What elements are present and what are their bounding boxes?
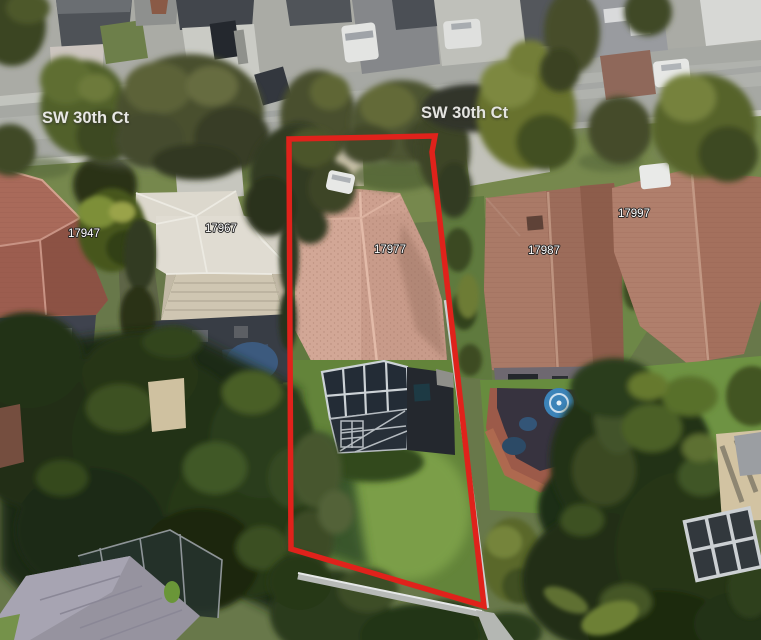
svg-text:SW 30th Ct: SW 30th Ct	[421, 104, 509, 122]
svg-text:17997: 17997	[618, 208, 650, 220]
svg-text:SW 30th Ct: SW 30th Ct	[42, 109, 130, 127]
svg-text:17947: 17947	[68, 228, 100, 240]
svg-text:17967: 17967	[205, 223, 237, 235]
svg-text:17977: 17977	[374, 244, 406, 256]
svg-text:17987: 17987	[528, 245, 560, 257]
